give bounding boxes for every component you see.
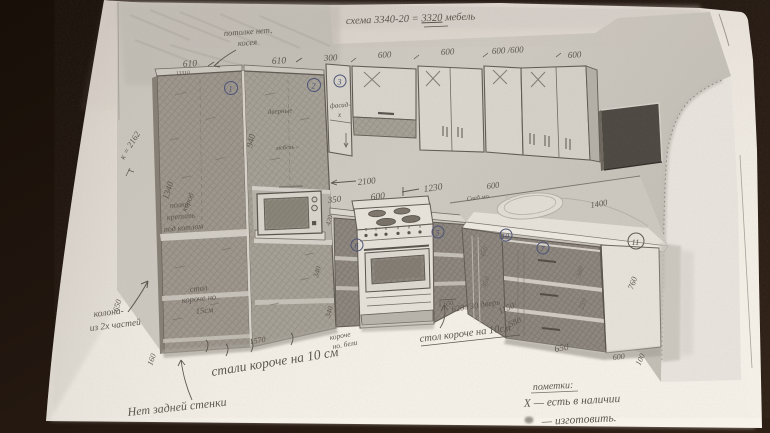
- svg-text:1: 1: [229, 85, 233, 94]
- svg-text:дверные: дверные: [268, 106, 293, 116]
- svg-text:600: 600: [568, 49, 583, 60]
- svg-text:полка: полка: [169, 199, 189, 210]
- svg-text:2: 2: [312, 82, 316, 91]
- svg-text:610: 610: [272, 56, 287, 67]
- svg-text:300: 300: [323, 52, 339, 63]
- svg-text:600 /600: 600 /600: [492, 44, 525, 56]
- svg-text:600: 600: [370, 192, 385, 203]
- svg-text:фасад-: фасад-: [330, 101, 352, 110]
- svg-text:5: 5: [436, 229, 440, 238]
- svg-text:610: 610: [183, 59, 198, 70]
- svg-text:2100: 2100: [357, 175, 376, 187]
- svg-text:10: 10: [502, 232, 510, 241]
- svg-text:13310: 13310: [176, 70, 190, 77]
- svg-text:косея: косея: [237, 37, 257, 48]
- svg-text:3: 3: [337, 78, 342, 87]
- svg-text:6: 6: [355, 242, 359, 251]
- svg-text:пометки:: пометки:: [533, 380, 574, 393]
- svg-text:600: 600: [378, 49, 393, 60]
- svg-text:350: 350: [326, 194, 342, 206]
- svg-text:11: 11: [632, 237, 640, 247]
- svg-text:15см: 15см: [195, 304, 214, 316]
- svg-text:600: 600: [441, 46, 456, 57]
- svg-text:600: 600: [486, 179, 501, 191]
- svg-text:600: 600: [612, 352, 625, 362]
